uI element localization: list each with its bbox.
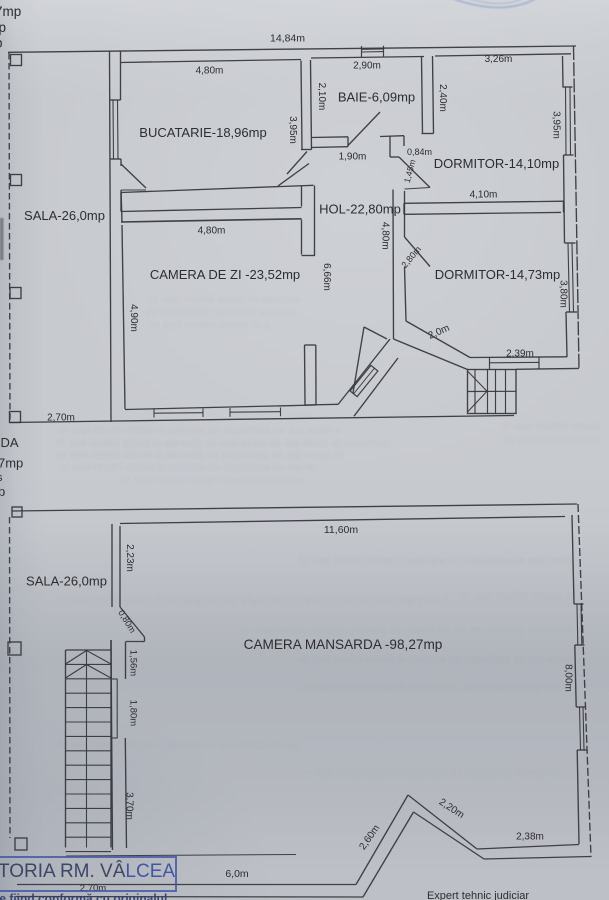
svg-text:2,70m: 2,70m xyxy=(47,413,75,424)
svg-text:14,84m: 14,84m xyxy=(270,33,305,45)
svg-text:nr cad imobil situat in parcel: nr cad imobil situat in parcela cu supra… xyxy=(300,682,558,693)
svg-text:SALA-26,0mp: SALA-26,0mp xyxy=(26,574,107,589)
svg-text:4,10m: 4,10m xyxy=(470,190,498,201)
svg-text:nr cad imobil situat in parcel: nr cad imobil situat in parcela cu supra… xyxy=(60,425,340,436)
svg-text:p: p xyxy=(0,484,5,499)
svg-text:7mp: 7mp xyxy=(0,456,23,471)
svg-text:CAMERA DE ZI -23,52mp: CAMERA DE ZI -23,52mp xyxy=(150,267,300,282)
svg-text:3,95m: 3,95m xyxy=(551,111,562,139)
svg-text:7mp: 7mp xyxy=(0,4,21,19)
svg-text:4,80m: 4,80m xyxy=(380,222,391,250)
svg-text:3,26m: 3,26m xyxy=(485,54,513,65)
svg-text:TORIA RM. VÂLCEA: TORIA RM. VÂLCEA xyxy=(0,860,175,882)
svg-text:8,00m: 8,00m xyxy=(563,664,574,692)
svg-text:3,95m: 3,95m xyxy=(287,116,298,144)
svg-text:nr cad imobil situat in p: nr cad imobil situat in p xyxy=(150,320,270,331)
svg-text:3,70m: 3,70m xyxy=(124,792,135,820)
svg-text:3,80m: 3,80m xyxy=(558,280,569,308)
svg-text:HOL-22,80mp: HOL-22,80mp xyxy=(319,201,401,216)
svg-text:nr cad imobil situat in parcel: nr cad imobil situat in parcela cu supra… xyxy=(60,462,315,473)
svg-text:nr cad imobil situat in parcel: nr cad imobil situat in parcela cu supra… xyxy=(302,768,557,779)
svg-text:11,60m: 11,60m xyxy=(324,524,358,536)
svg-text:2,20m: 2,20m xyxy=(437,797,466,821)
svg-text:CAMERA MANSARDA -98,27mp: CAMERA MANSARDA -98,27mp xyxy=(244,637,443,652)
svg-text:0,80m: 0,80m xyxy=(116,608,138,635)
svg-text:nr cad imobil situat in parcel: nr cad imobil situat in parcela cu su xyxy=(120,475,300,486)
svg-text:2,80m: 2,80m xyxy=(399,244,423,270)
svg-text:nr cad imobil situat in parcel: nr cad imobil situat in parcela cu supra… xyxy=(56,438,391,449)
svg-text:BUCATARIE-18,96mp: BUCATARIE-18,96mp xyxy=(139,125,266,140)
svg-text:0,84m: 0,84m xyxy=(407,147,432,157)
svg-text:4,90m: 4,90m xyxy=(128,304,139,332)
svg-text:DORMITOR-14,73mp: DORMITOR-14,73mp xyxy=(435,267,560,282)
svg-text:nr cad imobil situat in: nr cad imobil situat in xyxy=(460,591,575,602)
svg-text:1p: 1p xyxy=(0,20,6,35)
svg-text:SALA-26,0mp: SALA-26,0mp xyxy=(24,208,105,223)
svg-text:nr cad imobil situat in parcel: nr cad imobil situat in parcela xyxy=(148,307,297,318)
svg-text:p: p xyxy=(0,36,3,51)
svg-text:nr cad imobil situat in parcel: nr cad imobil situat in parcela cu supra… xyxy=(300,654,572,665)
svg-text:nr cad imobil situat in parcel: nr cad imobil situat in parcela cu supra… xyxy=(57,450,342,461)
svg-text:1,56m: 1,56m xyxy=(128,650,139,676)
svg-text:2,0m: 2,0m xyxy=(427,323,452,342)
svg-text:2,39m: 2,39m xyxy=(506,349,534,360)
svg-text:DA: DA xyxy=(1,435,19,450)
svg-text:nr cad imobil situat: nr cad imobil situat xyxy=(500,421,600,432)
svg-text:4,80m: 4,80m xyxy=(196,66,224,77)
svg-text:2,90m: 2,90m xyxy=(353,61,381,72)
svg-text:le fiind conformă cu originalu: le fiind conformă cu originalul xyxy=(0,892,167,900)
svg-text:nr cad imobil situat in parcel: nr cad imobil situat in parcela cu supra… xyxy=(58,740,298,751)
svg-text:1,80m: 1,80m xyxy=(128,700,139,726)
svg-text:2,40m: 2,40m xyxy=(437,84,448,112)
svg-text:1,90m: 1,90m xyxy=(339,152,367,163)
svg-text:s: s xyxy=(0,472,3,484)
svg-text:6,0m: 6,0m xyxy=(225,868,249,880)
svg-text:Expert tehnic judiciar: Expert tehnic judiciar xyxy=(427,890,529,900)
svg-text:4,80m: 4,80m xyxy=(198,226,226,237)
svg-text:2,10m: 2,10m xyxy=(316,83,327,111)
svg-text:6,66m: 6,66m xyxy=(321,263,332,291)
svg-text:2,60m: 2,60m xyxy=(357,823,382,852)
svg-text:2,23m: 2,23m xyxy=(124,544,135,572)
svg-text:nr cad imobil situat in parcel: nr cad imobil situat in parcela cu supra… xyxy=(58,595,448,606)
svg-text:nr cad imobil situat in parcel: nr cad imobil situat in parcela xyxy=(148,294,301,305)
svg-text:BAIE-6,09mp: BAIE-6,09mp xyxy=(338,90,415,105)
svg-text:2,38m: 2,38m xyxy=(516,832,544,843)
svg-text:DORMITOR-14,10mp: DORMITOR-14,10mp xyxy=(434,156,559,171)
svg-text:nr cad imobil situat in parcel: nr cad imobil situat in parcela cu supra… xyxy=(300,555,572,566)
svg-text:nr cad imobil situat in parcel: nr cad imobil situat in parcela cu supra… xyxy=(242,625,572,636)
svg-text:nr cad imobil situat: nr cad imobil situat xyxy=(505,435,600,446)
